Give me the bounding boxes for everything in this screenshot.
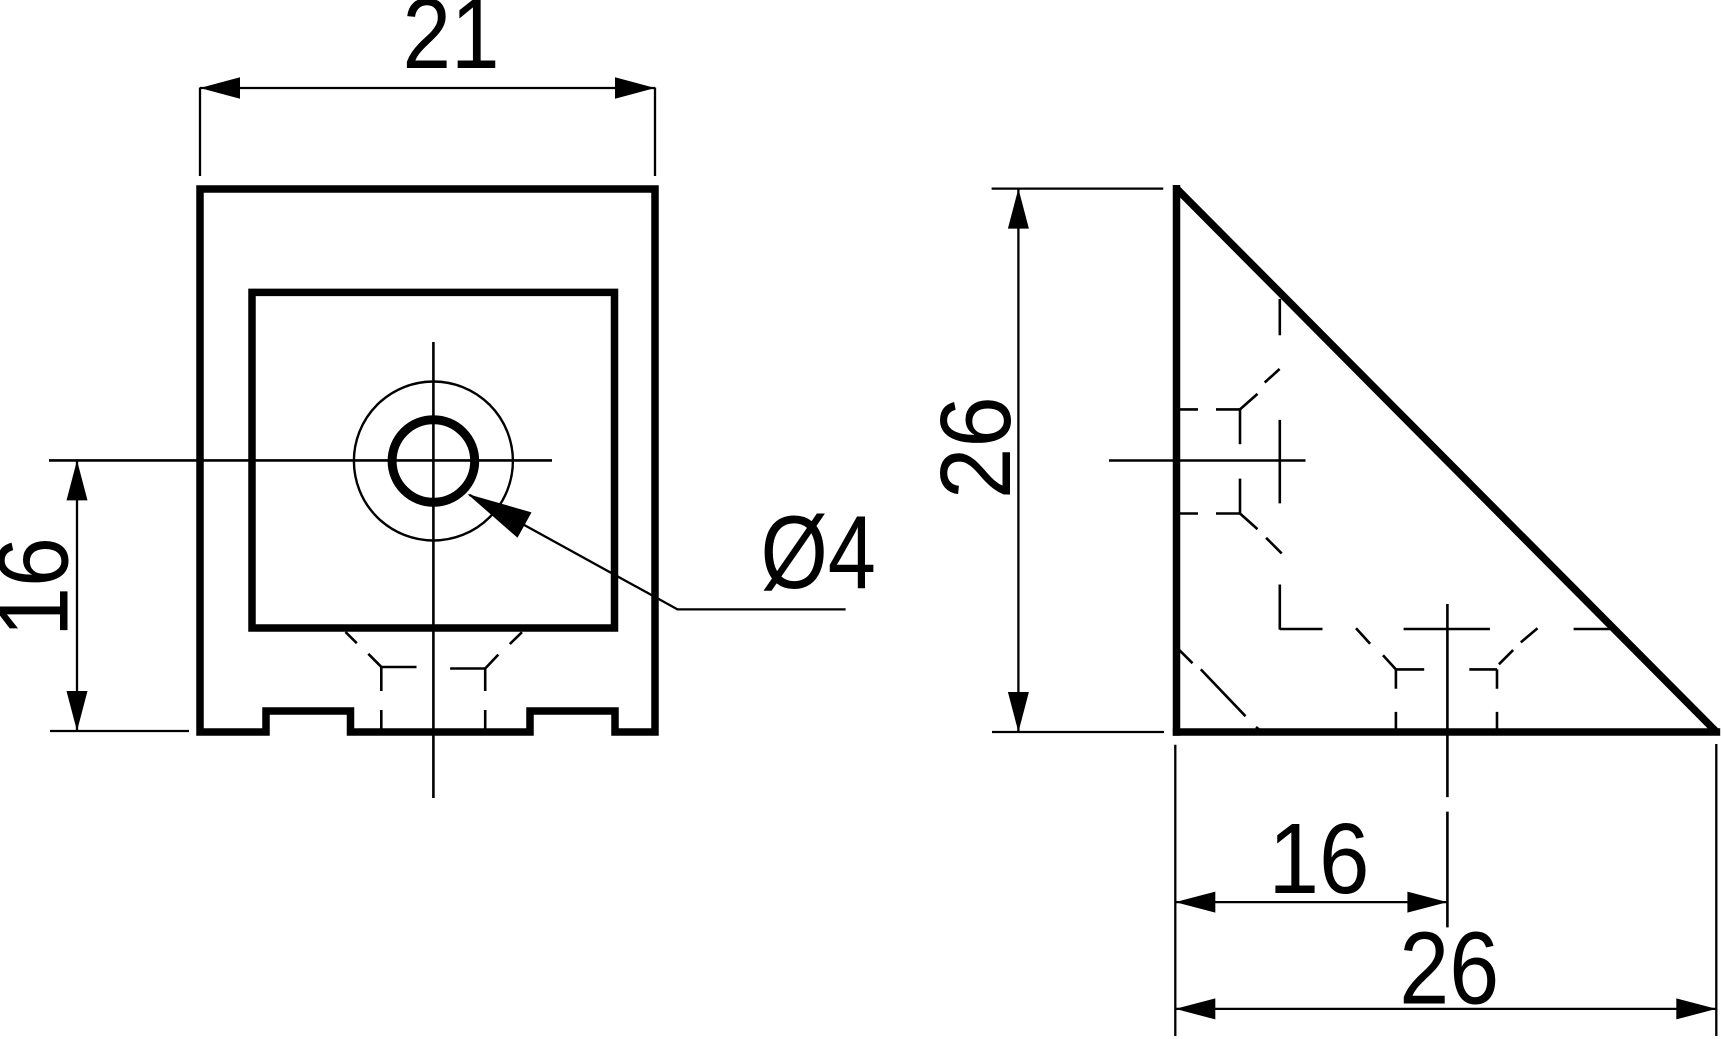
svg-text:26: 26 [1399,910,1499,1025]
svg-text:16: 16 [0,537,89,637]
svg-text:21: 21 [403,0,500,90]
svg-text:Ø4: Ø4 [760,495,876,611]
svg-text:26: 26 [920,396,1032,499]
svg-text:16: 16 [1269,803,1370,915]
